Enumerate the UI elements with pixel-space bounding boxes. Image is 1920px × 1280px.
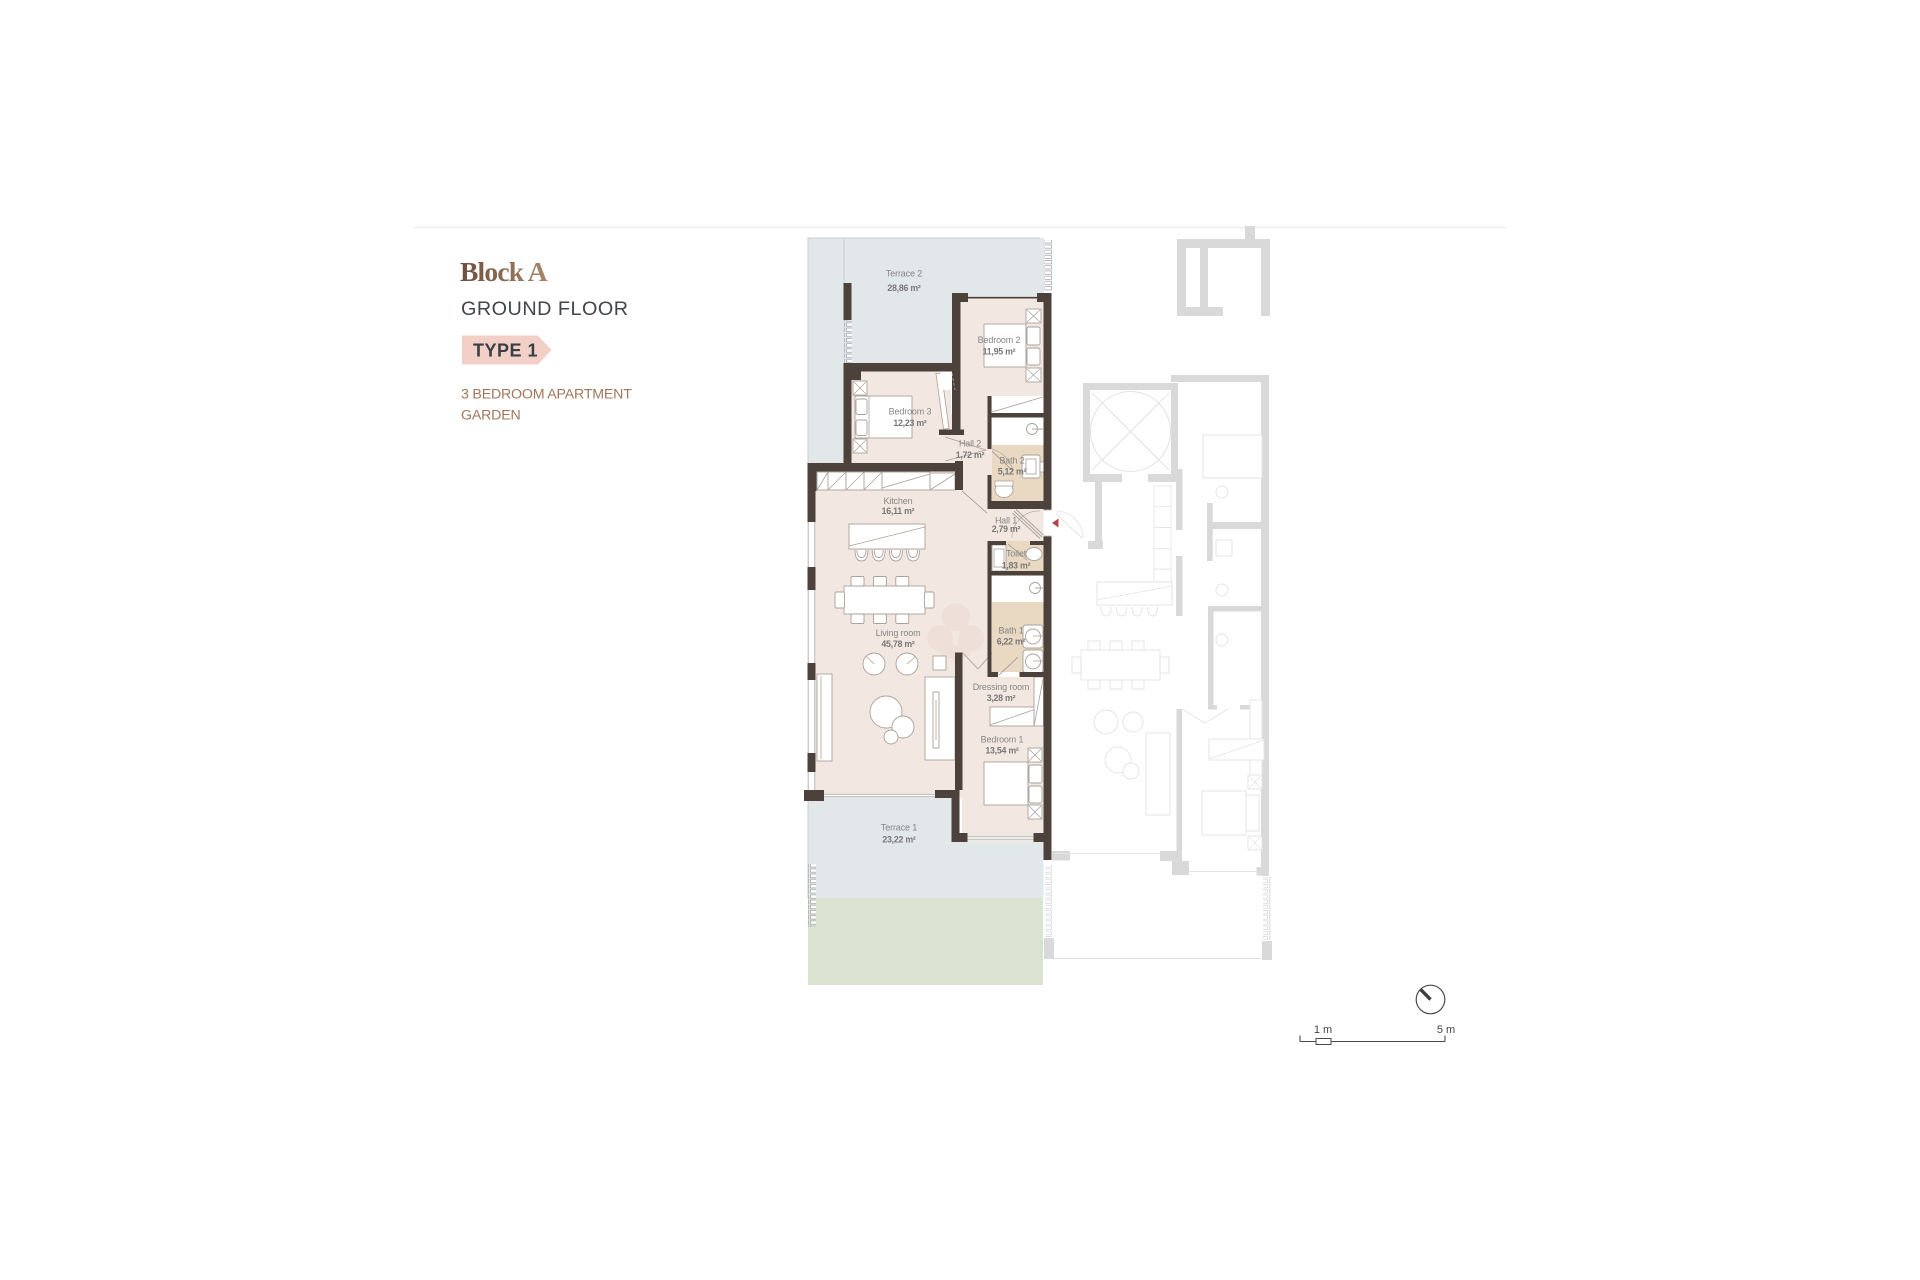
svg-text:45,78 m²: 45,78 m² [881,639,915,649]
svg-text:3,28 m²: 3,28 m² [987,693,1016,703]
svg-text:11,95 m²: 11,95 m² [983,347,1016,357]
svg-text:GROUND FLOOR: GROUND FLOOR [461,298,629,320]
svg-text:5,12 m²: 5,12 m² [998,467,1027,477]
svg-text:3 BEDROOM APARTMENT: 3 BEDROOM APARTMENT [461,387,632,403]
svg-text:13,54 m²: 13,54 m² [985,746,1019,756]
svg-text:Bedroom 3: Bedroom 3 [889,407,932,417]
svg-text:Bedroom 2: Bedroom 2 [978,335,1021,345]
svg-text:6,22 m²: 6,22 m² [997,637,1026,647]
svg-text:Block A: Block A [460,256,548,287]
svg-text:28,86 m²: 28,86 m² [887,283,921,293]
svg-text:GARDEN: GARDEN [461,408,521,424]
svg-text:Toilet: Toilet [1006,549,1027,559]
svg-text:1 m: 1 m [1314,1024,1332,1036]
svg-text:5 m: 5 m [1437,1024,1455,1036]
svg-text:Bath 2: Bath 2 [999,456,1024,466]
svg-text:1,72 m²: 1,72 m² [956,450,985,460]
svg-text:Kitchen: Kitchen [884,496,913,506]
svg-text:Dressing room: Dressing room [973,682,1030,692]
svg-text:TYPE 1: TYPE 1 [473,341,538,361]
svg-text:2,79 m²: 2,79 m² [992,524,1021,534]
svg-text:Bedroom 1: Bedroom 1 [981,735,1024,745]
svg-text:Living room: Living room [876,628,921,638]
svg-text:Terrace 1: Terrace 1 [881,823,917,833]
svg-text:16,11 m²: 16,11 m² [882,506,915,516]
svg-text:12,23 m²: 12,23 m² [893,418,927,428]
svg-text:Bath 1: Bath 1 [998,626,1023,636]
svg-text:Hall 2: Hall 2 [959,439,981,449]
svg-text:Terrace 2: Terrace 2 [886,269,922,279]
svg-text:23,22 m²: 23,22 m² [882,835,916,845]
svg-text:1,83 m²: 1,83 m² [1002,561,1031,571]
